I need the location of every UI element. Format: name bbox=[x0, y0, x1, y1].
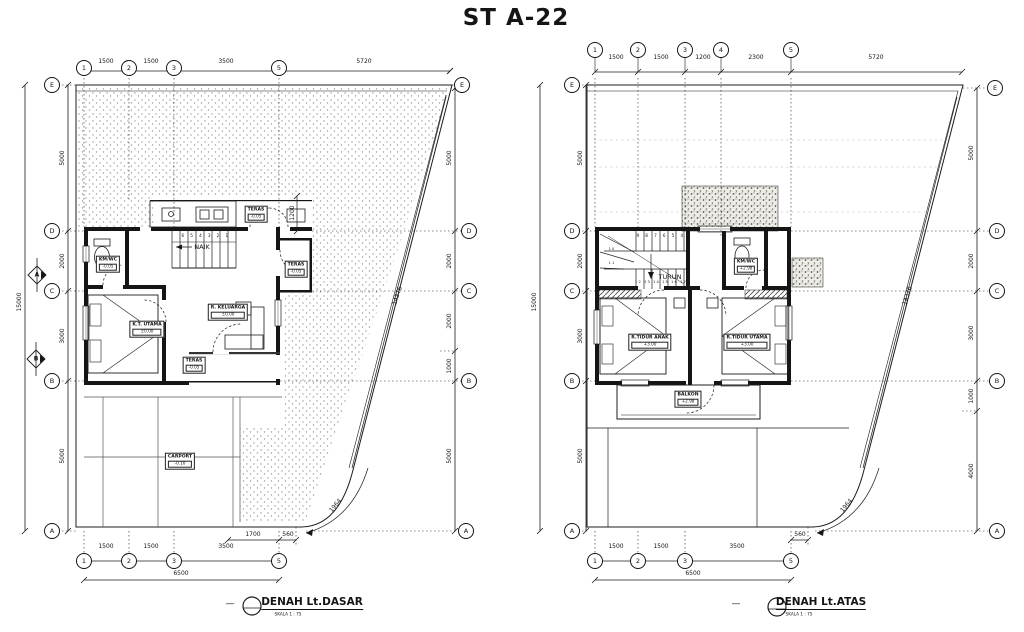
dim: 2000 bbox=[578, 253, 584, 268]
room-label-teras-side: TERAS-0.05 bbox=[285, 261, 308, 278]
dim: 1500 bbox=[608, 544, 623, 550]
grid-bubble-rowC: C bbox=[989, 283, 1005, 299]
dim: 2000 bbox=[969, 253, 975, 268]
dim: 3000 bbox=[578, 328, 584, 343]
grid-bubble-col2: 2 bbox=[630, 553, 646, 569]
grid-bubble-rowE: E bbox=[564, 77, 580, 93]
dim-total-width: 6500 bbox=[685, 571, 700, 577]
stair-step-numbers-top: 9 8 7 6 5 4 bbox=[636, 234, 685, 238]
dim: 5000 bbox=[578, 448, 584, 463]
dim: 5720 bbox=[868, 55, 883, 61]
grid-bubble-col2: 2 bbox=[630, 42, 646, 58]
dim: 1500 bbox=[608, 55, 623, 61]
grid-bubble-col5: 5 bbox=[783, 553, 799, 569]
dim: 1700 bbox=[245, 532, 260, 538]
stair-step-number-10: 10 bbox=[609, 248, 616, 252]
grid-bubble-rowD: D bbox=[989, 223, 1005, 239]
sheet-title: ST A-22 bbox=[463, 5, 570, 31]
grid-bubble-col2: 2 bbox=[121, 60, 137, 76]
dim-total-height: 15000 bbox=[532, 292, 538, 311]
dimension-lines-upper bbox=[537, 57, 980, 583]
dim: 2000 bbox=[447, 253, 453, 268]
dim: 3000 bbox=[969, 325, 975, 340]
dim: 5000 bbox=[578, 150, 584, 165]
caption-symbol-ground bbox=[243, 597, 261, 615]
dim-total-height: 15000 bbox=[17, 292, 23, 311]
dim: 5000 bbox=[447, 150, 453, 165]
grid-bubble-rowC: C bbox=[44, 283, 60, 299]
drawing-sheet: ST A-22 1 2 3 5 E 1500 1500 3500 5720 E … bbox=[0, 0, 1024, 632]
windows-upper bbox=[594, 226, 792, 386]
ground-floor-plan bbox=[22, 68, 462, 615]
plan-linework bbox=[0, 0, 1024, 632]
grid-bubble-col5: 5 bbox=[271, 553, 287, 569]
plan-caption-ground: DENAH Lt.DASAR bbox=[261, 596, 363, 610]
dim: 5720 bbox=[356, 59, 371, 65]
grid-bubble-rowB: B bbox=[461, 373, 477, 389]
grid-bubble-col3: 3 bbox=[166, 60, 182, 76]
dim-terrace-depth: 1200 bbox=[290, 205, 296, 220]
plan-scale-ground: SKALA 1 : 75 bbox=[275, 612, 302, 617]
dim: 1500 bbox=[98, 59, 113, 65]
roof-hatch-patch-1 bbox=[682, 186, 778, 231]
room-label-kmwc: KM/WC-0.05 bbox=[96, 256, 120, 273]
dim: 1500 bbox=[98, 544, 113, 550]
dim: 1500 bbox=[143, 544, 158, 550]
section-marker-a: A bbox=[35, 272, 40, 279]
grid-bubble-rowA: A bbox=[564, 523, 580, 539]
grid-bubble-col3: 3 bbox=[677, 553, 693, 569]
grid-bubble-rowA: A bbox=[44, 523, 60, 539]
grid-bubble-col1: 1 bbox=[587, 42, 603, 58]
grid-bubble-rowB: B bbox=[44, 373, 60, 389]
room-label-bedroom: K.T. UTAMA±0.00 bbox=[129, 321, 164, 338]
dim: 560 bbox=[282, 532, 293, 538]
dim: 5000 bbox=[447, 448, 453, 463]
plan-caption-upper: DENAH Lt.ATAS bbox=[776, 596, 866, 610]
grid-bubble-col5: 5 bbox=[271, 60, 287, 76]
dim: 1500 bbox=[653, 544, 668, 550]
room-label-bed-anak: R.TIDUR ANAK+3.00 bbox=[628, 334, 671, 351]
grid-bubble-rowD: D bbox=[564, 223, 580, 239]
lower-roof-outline bbox=[587, 428, 849, 527]
turun-arrow bbox=[648, 272, 654, 279]
dim: 1500 bbox=[653, 55, 668, 61]
dim: 3500 bbox=[729, 544, 744, 550]
room-label-teras-top: TERAS-0.05 bbox=[245, 206, 268, 223]
dim: 1000 bbox=[969, 388, 975, 403]
grid-bubble-col4: 4 bbox=[713, 42, 729, 58]
dim: 2000 bbox=[447, 313, 453, 328]
stair-step-numbers: 6 5 4 3 2 1 bbox=[181, 234, 230, 238]
grid-bubble-rowD: D bbox=[461, 223, 477, 239]
dim: 5000 bbox=[969, 145, 975, 160]
grid-bubble-col1: 1 bbox=[76, 553, 92, 569]
dim: 4000 bbox=[969, 463, 975, 478]
dim: 1500 bbox=[143, 59, 158, 65]
caption-dash: — bbox=[226, 599, 235, 609]
naik-arrow bbox=[176, 245, 182, 250]
grid-bubble-rowA: A bbox=[989, 523, 1005, 539]
grid-bubble-col1: 1 bbox=[76, 60, 92, 76]
grid-bubble-col3: 3 bbox=[166, 553, 182, 569]
room-label-kmwc-upper: KM/WC+2.98 bbox=[734, 258, 758, 275]
grid-bubble-col1: 1 bbox=[587, 553, 603, 569]
dim: 1000 bbox=[447, 358, 453, 373]
grid-bubble-col3: 3 bbox=[677, 42, 693, 58]
grid-bubble-rowD: D bbox=[44, 223, 60, 239]
grid-bubble-col2: 2 bbox=[121, 553, 137, 569]
stair-step-number-11: 11 bbox=[609, 262, 616, 266]
dim: 3500 bbox=[218, 59, 233, 65]
dim: 2000 bbox=[60, 253, 66, 268]
grid-bubble-rowC: C bbox=[564, 283, 580, 299]
dim: 5000 bbox=[60, 150, 66, 165]
grid-bubble-rowB: B bbox=[564, 373, 580, 389]
stair-direction-label: NAIK bbox=[194, 243, 210, 251]
room-label-bed-utama: R.TIDUR UTAMA+3.00 bbox=[723, 334, 770, 351]
dim: 3000 bbox=[60, 328, 66, 343]
dim: 2300 bbox=[748, 55, 763, 61]
grid-bubble-rowE: E bbox=[44, 77, 60, 93]
dim-total-width: 6500 bbox=[173, 571, 188, 577]
room-label-balkon: BALKON+2.98 bbox=[674, 391, 701, 408]
grid-bubble-rowA: A bbox=[458, 523, 474, 539]
caption-dash: — bbox=[732, 599, 741, 609]
plan-scale-upper: SKALA 1 : 75 bbox=[786, 612, 813, 617]
grid-leaders-upper bbox=[578, 78, 989, 553]
dim: 1200 bbox=[695, 55, 710, 61]
furniture-upper bbox=[600, 238, 788, 374]
room-label-carport: CARPORT-0.10 bbox=[165, 453, 195, 470]
grid-bubble-rowE: E bbox=[987, 80, 1003, 96]
grid-bubble-rowE: E bbox=[454, 77, 470, 93]
dim: 560 bbox=[794, 532, 805, 538]
roof-hatch-patch-2 bbox=[792, 258, 823, 287]
stair-step-numbers-bottom: 12 13 14 15 16 17 bbox=[635, 281, 687, 285]
dim: 5000 bbox=[60, 448, 66, 463]
grid-bubble-rowC: C bbox=[461, 283, 477, 299]
grid-bubble-rowB: B bbox=[989, 373, 1005, 389]
dim: 3500 bbox=[218, 544, 233, 550]
grid-bubble-col5: 5 bbox=[783, 42, 799, 58]
room-label-teras-front: TERAS-0.05 bbox=[183, 357, 206, 374]
section-marker-b: B bbox=[34, 356, 39, 363]
room-label-family: R. KELUARGA±0.00 bbox=[208, 304, 248, 321]
